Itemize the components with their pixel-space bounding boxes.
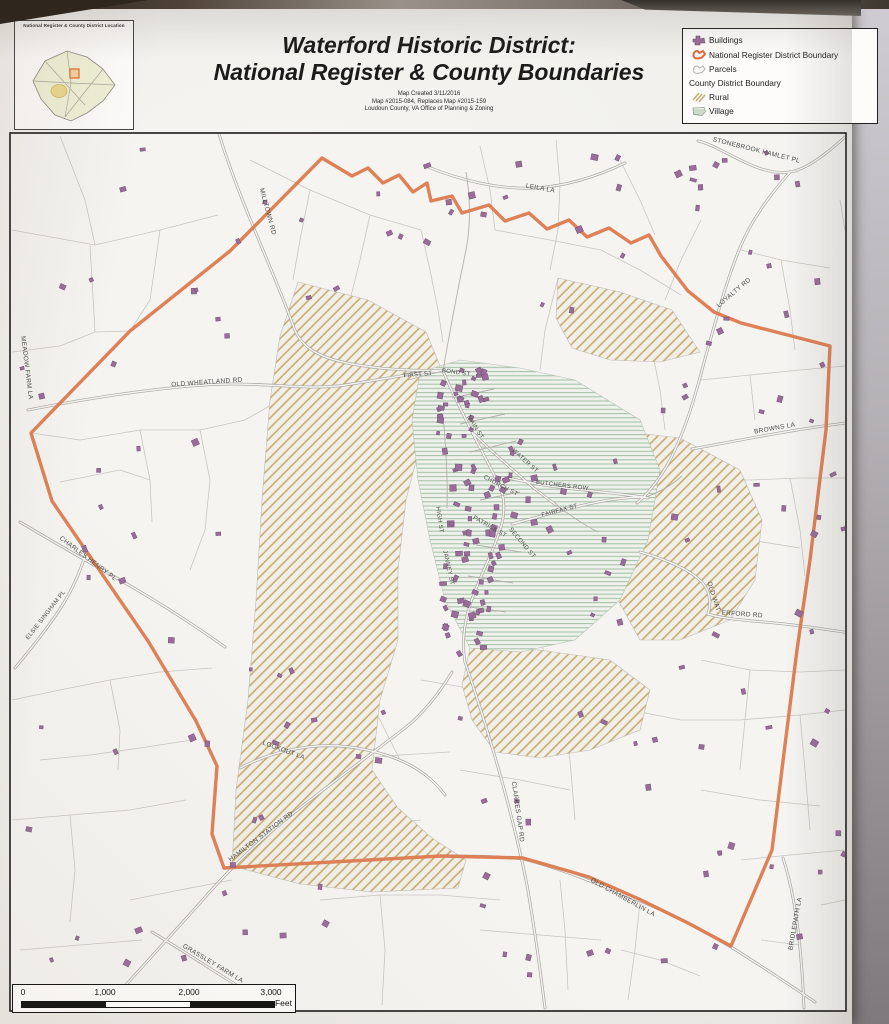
legend-label: Rural: [709, 92, 729, 102]
inset-title: National Register & County District Loca…: [17, 23, 131, 28]
legend-label: National Register District Boundary: [709, 50, 838, 60]
scale-tick-3000: 3,000: [260, 987, 281, 997]
title-block: Waterford Historic District: National Re…: [146, 32, 712, 114]
scale-bar-segments: [21, 1001, 275, 1008]
caption-created: Map Created 3/11/2016: [146, 91, 712, 99]
legend-row-buildings: Buildings: [689, 33, 877, 48]
title-line-2: National Register & County Boundaries: [146, 59, 712, 86]
scale-tick-1000: 1,000: [94, 987, 115, 997]
legend: Buildings National Register District Bou…: [682, 28, 878, 124]
scale-unit: Feet: [275, 998, 292, 1008]
parcels-icon: [689, 63, 709, 76]
legend-row-rural: Rural: [689, 90, 877, 105]
caption-map-number: Map #2015-084, Replaces Map #2015-159: [146, 99, 712, 107]
rural-hatch-icon: [689, 90, 709, 103]
legend-row-village: Village: [689, 104, 877, 119]
buildings-icon: [689, 34, 709, 47]
map-sheet: MILLTOWN RDLEILA LASTONEBROOK HAMLET PLL…: [0, 8, 852, 1024]
legend-group-county-district: County District Boundary: [689, 77, 877, 90]
scale-segment-white: [106, 1002, 190, 1007]
map-canvas: MILLTOWN RDLEILA LASTONEBROOK HAMLET PLL…: [0, 8, 852, 1024]
scale-segment-black: [190, 1002, 274, 1007]
scale-bar: 0 1,000 2,000 3,000 Feet: [12, 984, 296, 1013]
village-hatch-icon: [689, 105, 709, 118]
scale-segment-black: [22, 1002, 106, 1007]
page-title: Waterford Historic District: National Re…: [146, 32, 712, 86]
scale-tick-0: 0: [21, 987, 26, 997]
waterford-location-marker: [70, 69, 79, 78]
rural-district-marker: [51, 85, 67, 98]
legend-row-parcels: Parcels: [689, 62, 877, 77]
county-locator-graphic: [15, 29, 133, 127]
scale-tick-2000: 2,000: [178, 987, 199, 997]
caption-agency: Loudoun County, VA Office of Planning & …: [146, 106, 712, 114]
nr-boundary-icon: [689, 48, 709, 61]
legend-label: Village: [709, 106, 734, 116]
legend-label: Parcels: [709, 64, 737, 74]
legend-row-nr-boundary: National Register District Boundary: [689, 48, 877, 63]
map-caption: Map Created 3/11/2016 Map #2015-084, Rep…: [146, 91, 712, 114]
legend-label: Buildings: [709, 35, 743, 45]
locator-inset-map: National Register & County District Loca…: [14, 20, 134, 130]
title-line-1: Waterford Historic District:: [146, 32, 712, 59]
